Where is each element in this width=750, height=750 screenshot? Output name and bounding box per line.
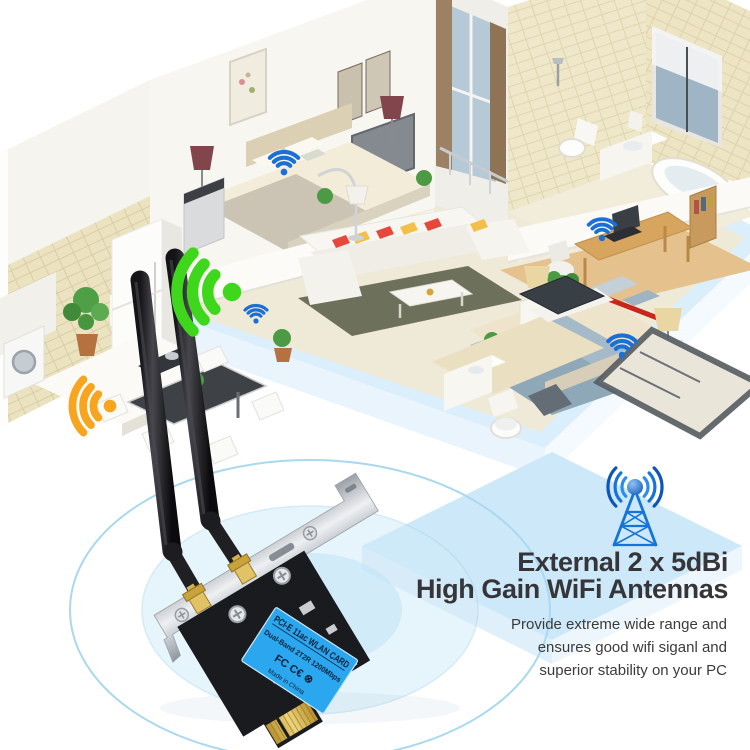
headline-line2: High Gain WiFi Antennas — [416, 576, 728, 603]
body-copy: Provide extreme wide range and ensures g… — [511, 613, 727, 682]
curtain — [490, 22, 506, 184]
plant — [416, 170, 432, 186]
body-line1: Provide extreme wide range and — [511, 613, 727, 636]
headline-line1: External 2 x 5dBi — [416, 549, 728, 576]
plant — [317, 188, 333, 204]
curtain — [436, 0, 452, 170]
body-line3: superior stability on your PC — [511, 659, 727, 682]
body-line2: ensures good wifi siganl and — [511, 636, 727, 659]
product-advertisement: PCI-E 11ac WLAN CARD Dual-Band 2T2R 1200… — [0, 0, 750, 750]
headline: External 2 x 5dBi High Gain WiFi Antenna… — [416, 549, 728, 603]
